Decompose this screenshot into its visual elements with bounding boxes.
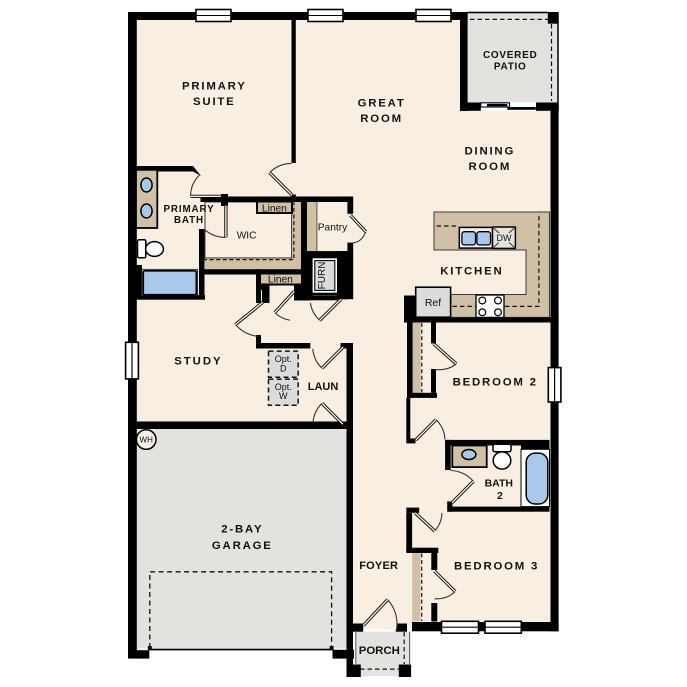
svg-text:BEDROOM 3: BEDROOM 3: [454, 561, 539, 573]
svg-text:BEDROOM 2: BEDROOM 2: [453, 376, 538, 388]
svg-text:FURN: FURN: [317, 262, 328, 290]
svg-text:GARAGE: GARAGE: [212, 540, 273, 552]
svg-text:2-BAY: 2-BAY: [221, 524, 263, 536]
svg-text:ROOM: ROOM: [360, 113, 403, 125]
svg-text:DW: DW: [497, 233, 512, 243]
svg-text:BATH: BATH: [174, 215, 204, 226]
svg-text:PATIO: PATIO: [494, 61, 527, 72]
svg-text:Linen: Linen: [262, 204, 287, 215]
svg-text:COVERED: COVERED: [483, 50, 537, 61]
svg-text:GREAT: GREAT: [358, 98, 406, 110]
svg-text:ROOM: ROOM: [468, 161, 511, 173]
svg-text:WH: WH: [140, 436, 154, 445]
svg-text:PORCH: PORCH: [359, 645, 400, 657]
svg-text:LAUN: LAUN: [308, 381, 339, 393]
svg-text:Ref: Ref: [425, 297, 441, 309]
svg-text:D: D: [280, 364, 287, 374]
svg-text:SUITE: SUITE: [193, 96, 236, 108]
svg-text:Linen: Linen: [268, 274, 293, 285]
svg-text:FOYER: FOYER: [359, 560, 398, 572]
svg-text:PRIMARY: PRIMARY: [182, 81, 247, 93]
svg-text:PRIMARY: PRIMARY: [163, 204, 214, 215]
svg-text:2: 2: [497, 490, 503, 502]
svg-text:STUDY: STUDY: [174, 356, 222, 368]
svg-text:BATH: BATH: [485, 478, 513, 490]
svg-text:KITCHEN: KITCHEN: [440, 266, 503, 278]
svg-text:DINING: DINING: [464, 145, 515, 157]
svg-text:W: W: [279, 391, 288, 401]
svg-text:WIC: WIC: [237, 231, 257, 242]
svg-text:Pantry: Pantry: [318, 223, 348, 234]
